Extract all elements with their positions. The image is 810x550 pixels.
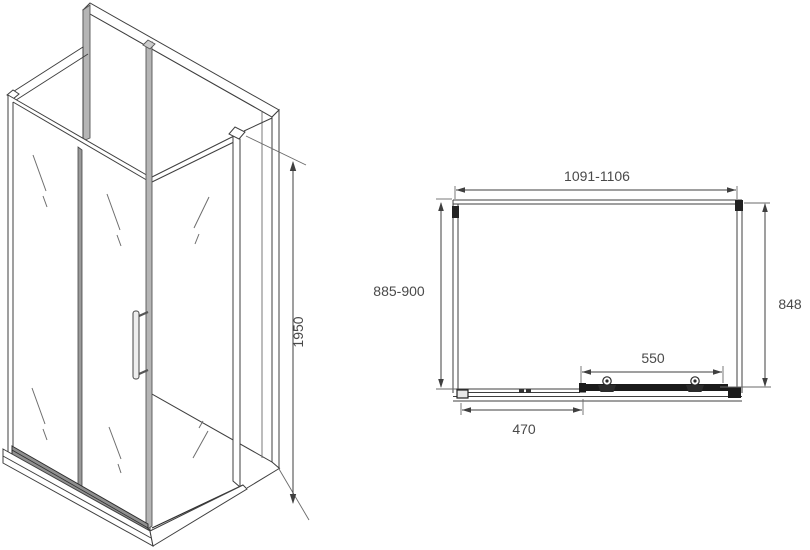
plan-door-rail: [437, 377, 742, 401]
depth-right-dimension-label: 848: [778, 296, 802, 312]
rail-clip: [526, 389, 531, 393]
door-width-dimension: 550: [581, 350, 723, 383]
wall-profile-left: [452, 206, 459, 218]
rail-clip: [519, 389, 524, 393]
door-width-dimension-label: 550: [641, 350, 665, 366]
width-dimension: 1091-1106: [455, 168, 737, 199]
plan-view: 1091-1106 885-900 848 550: [373, 168, 802, 437]
door-edge-post: [146, 42, 152, 530]
height-dimension-label: 1950: [290, 316, 306, 347]
back-panel-left-profile: [83, 5, 90, 141]
plan-walls: [452, 200, 743, 393]
rail-dimension-label: 470: [512, 421, 536, 437]
back-right-post: [233, 134, 240, 487]
depth-right-dimension: 848: [720, 203, 802, 387]
drawing-svg: 1950: [0, 0, 810, 550]
door-end-cap: [579, 383, 586, 393]
handle-grip: [133, 311, 139, 379]
door-divider-stile: [78, 147, 82, 502]
rail-dimension: 470: [461, 399, 583, 437]
depth-left-dimension-label: 885-900: [373, 283, 425, 299]
depth-left-dimension: 885-900: [373, 199, 456, 389]
rail-end-bracket: [457, 390, 468, 398]
technical-drawing: 1950: [0, 0, 810, 550]
corner-bracket: [728, 387, 741, 398]
width-dimension-label: 1091-1106: [564, 168, 630, 184]
glass-mark: [193, 421, 208, 458]
isometric-view: 1950: [3, 3, 309, 546]
wall-profile-right: [735, 200, 743, 211]
